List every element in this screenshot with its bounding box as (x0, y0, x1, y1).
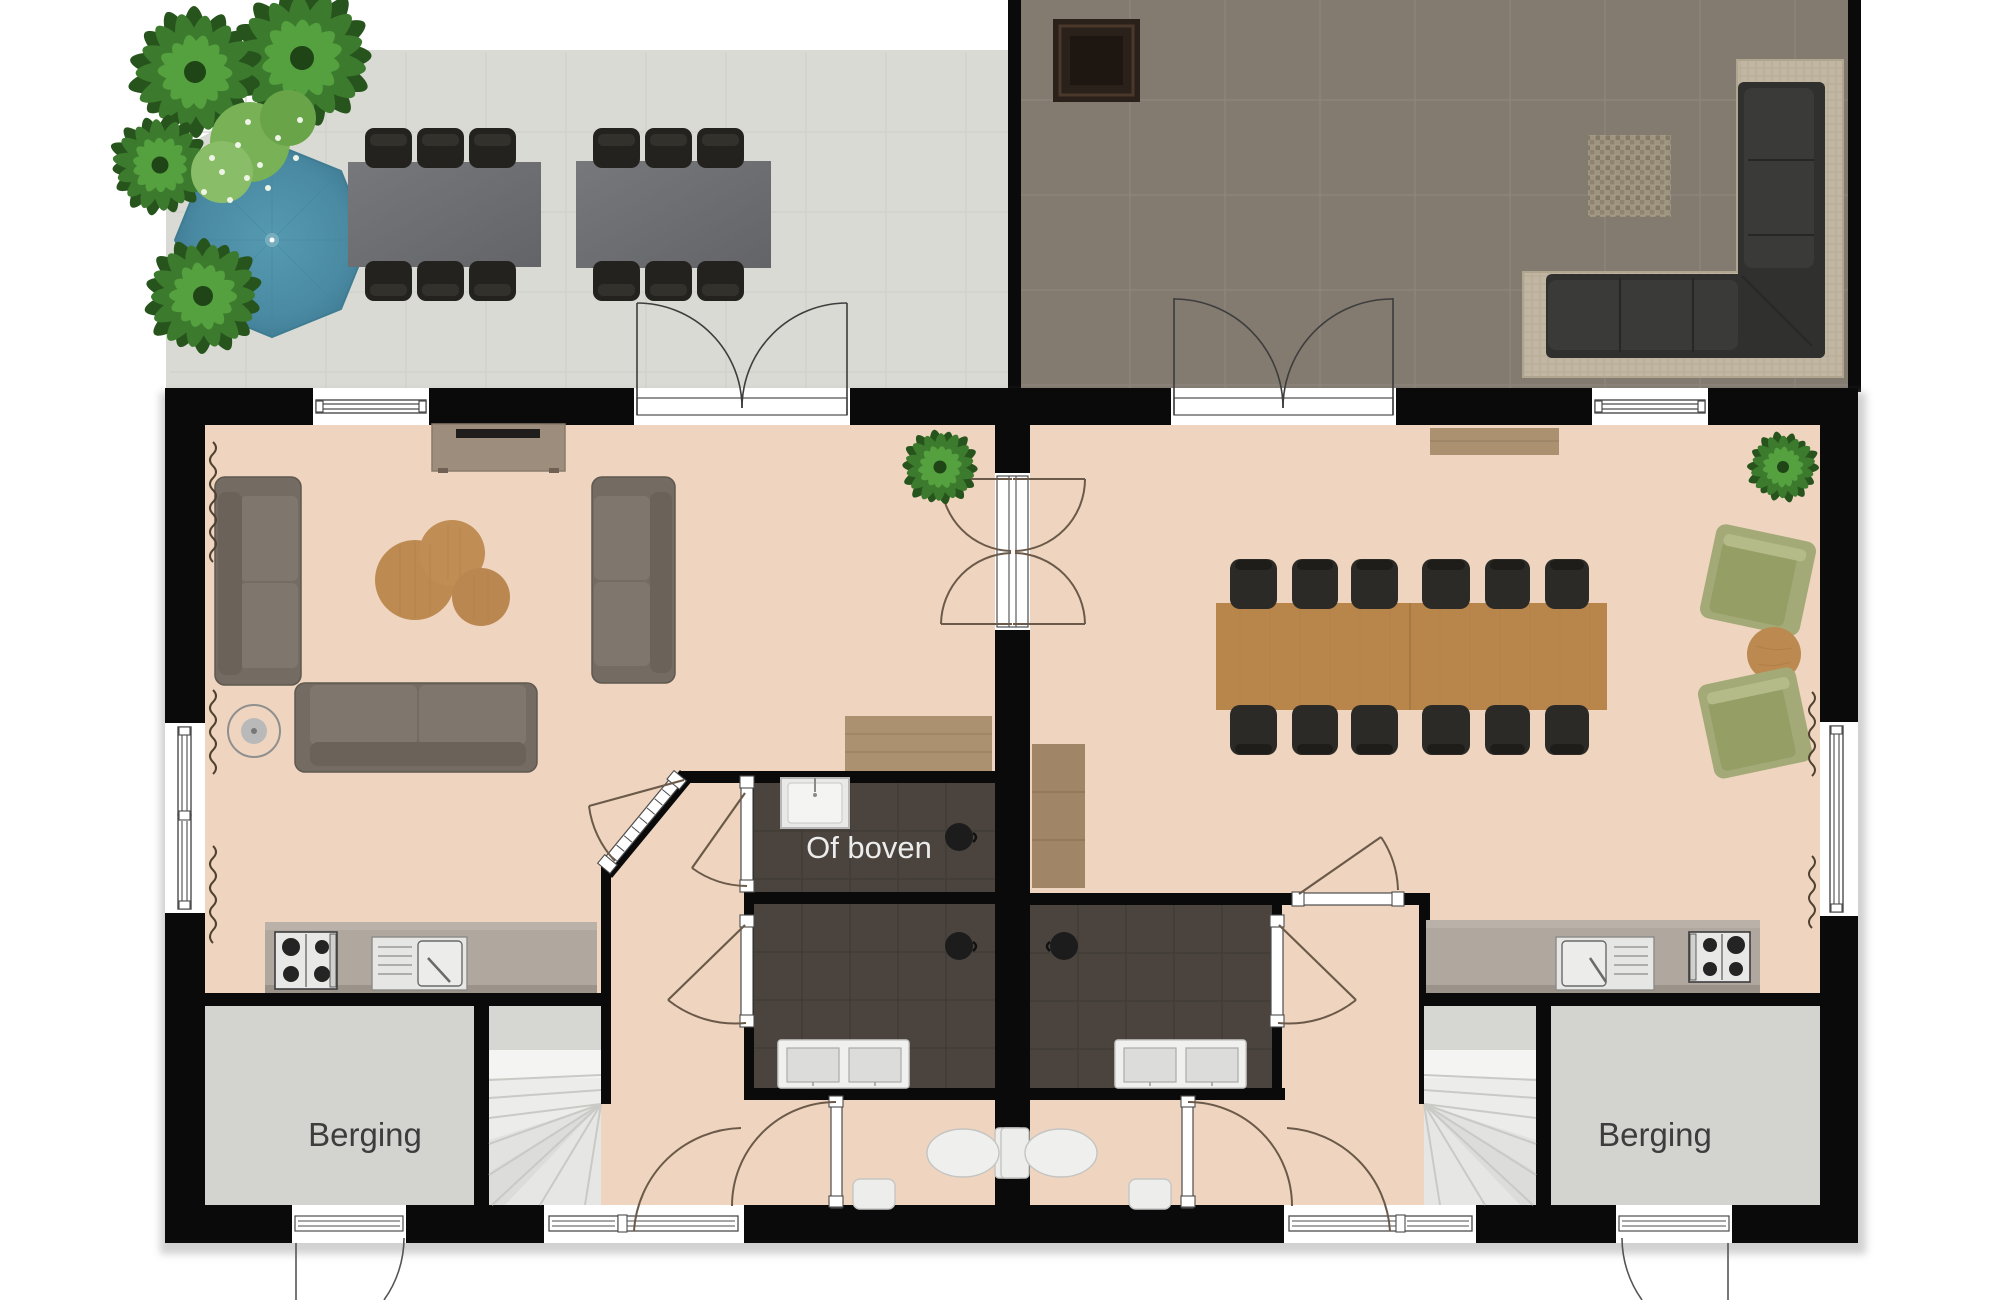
svg-text:Berging: Berging (308, 1116, 422, 1153)
svg-text:Of boven: Of boven (806, 830, 932, 865)
svg-text:Berging: Berging (1598, 1116, 1712, 1153)
